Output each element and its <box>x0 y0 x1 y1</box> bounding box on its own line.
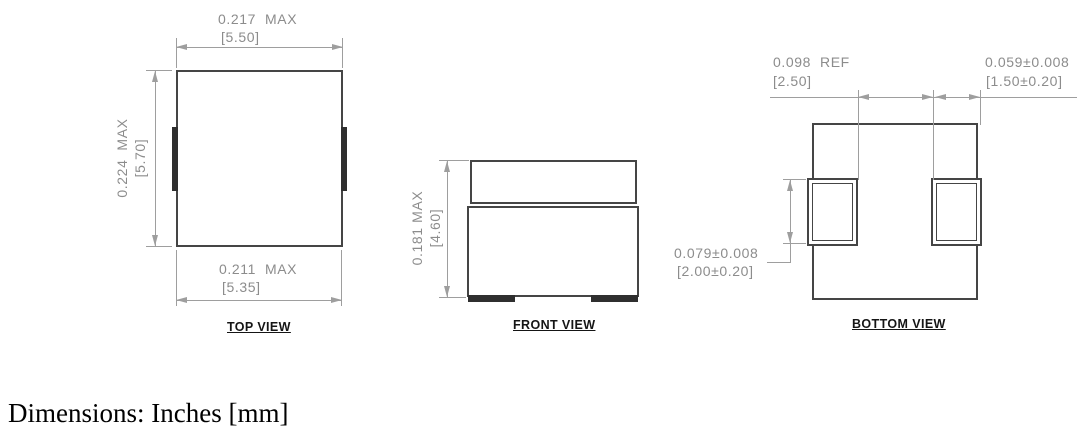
top-view-width-dim-mm: [5.50] <box>221 29 260 46</box>
top-view-width-ext-left <box>176 38 177 68</box>
top-view-width-dim-line <box>176 47 343 48</box>
dim-arrow-left-icon <box>176 44 187 50</box>
front-view-right-foot-terminal <box>591 295 638 302</box>
technical-drawing-canvas: 0.217 MAX [5.50] 0.224 MAX [5.70] 0.211 … <box>0 0 1082 442</box>
top-view-width-dim-inch: 0.217 MAX <box>218 11 297 28</box>
top-view-body <box>176 70 343 247</box>
top-view-height-dim-inch: 0.224 MAX <box>114 108 131 208</box>
top-view-height-dim-text: 0.224 MAX [5.70] <box>114 108 154 208</box>
bottom-view-pad-gap-dim-mm: [2.50] <box>773 73 812 90</box>
top-view-bottom-dim-line <box>176 300 342 301</box>
front-view-height-dim-mm: [4.60] <box>427 178 444 278</box>
dim-arrow-right-icon <box>922 94 933 100</box>
dimensions-units-note: Dimensions: Inches [mm] <box>8 398 288 429</box>
dim-arrow-down-icon <box>152 235 158 246</box>
dim-arrow-left-icon <box>176 297 187 303</box>
dim-arrow-up-icon <box>787 180 793 191</box>
bottom-view-ext-pad-outer <box>980 90 981 125</box>
dim-arrow-up-icon <box>152 71 158 82</box>
front-view-lower-block <box>467 206 639 297</box>
dim-arrow-down-icon <box>444 286 450 297</box>
dim-arrow-right-icon <box>331 297 342 303</box>
top-view-bottom-dim-mm: [5.35] <box>222 279 261 296</box>
front-view-upper-block <box>470 160 637 204</box>
top-view-height-dim-line <box>155 71 156 246</box>
bottom-view-pad-width-dim-inch: 0.059±0.008 <box>985 54 1069 71</box>
top-view-height-ext-top <box>146 70 172 71</box>
bottom-view-pad-height-dim-inch: 0.079±0.008 <box>674 245 758 262</box>
top-view-right-terminal <box>341 127 347 191</box>
top-view-left-terminal <box>172 127 178 191</box>
top-view-height-dim-mm: [5.70] <box>132 108 149 208</box>
dim-arrow-right-icon <box>332 44 343 50</box>
bottom-view-right-pad-inner <box>936 183 977 241</box>
bottom-view-left-pad-inner <box>812 183 853 241</box>
front-view-left-foot-terminal <box>468 295 515 302</box>
bottom-view-pad-height-dim-mm: [2.00±0.20] <box>677 263 754 280</box>
bottom-view-ext-pad-gap-left <box>858 90 859 180</box>
bottom-view-pad-height-dim-line <box>790 180 791 262</box>
dim-arrow-right-icon <box>969 94 980 100</box>
top-view-label: TOP VIEW <box>227 320 291 334</box>
top-view-bottom-dim-inch: 0.211 MAX <box>219 261 297 278</box>
front-view-height-dim-inch: 0.181 MAX <box>409 178 426 278</box>
front-view-height-ext-bottom <box>439 297 466 298</box>
top-view-width-ext-right <box>342 38 343 68</box>
dim-arrow-left-icon <box>858 94 869 100</box>
bottom-view-pad-gap-dim-inch: 0.098 REF <box>773 54 850 71</box>
bottom-view-pad-width-dim-mm: [1.50±0.20] <box>986 73 1063 90</box>
bottom-view-pad-height-ext-bottom <box>783 243 806 244</box>
bottom-view-pad-height-leader <box>767 262 791 263</box>
front-view-label: FRONT VIEW <box>513 318 595 332</box>
top-view-height-ext-bottom <box>146 246 172 247</box>
bottom-view-ext-pad-gap-right <box>933 90 934 180</box>
front-view-height-dim-text: 0.181 MAX [4.60] <box>409 178 449 278</box>
dim-arrow-left-icon <box>935 94 946 100</box>
bottom-view-label: BOTTOM VIEW <box>852 317 946 331</box>
dim-arrow-up-icon <box>444 161 450 172</box>
dim-arrow-down-icon <box>787 232 793 243</box>
